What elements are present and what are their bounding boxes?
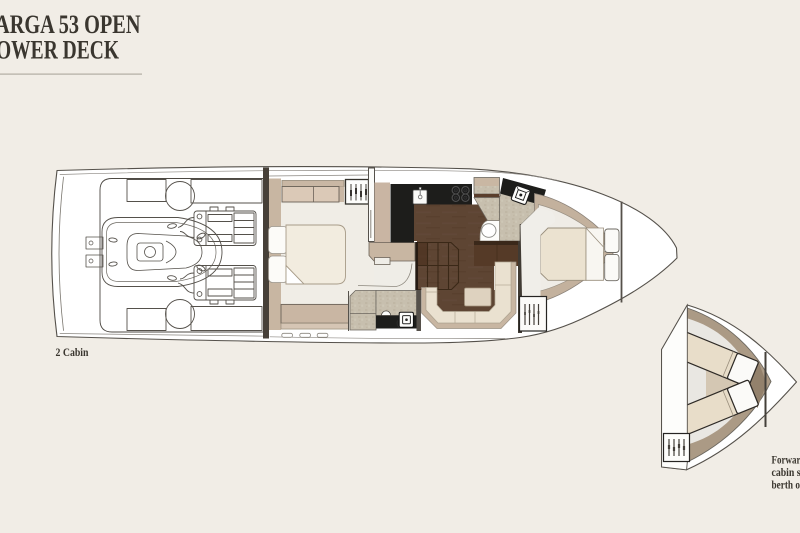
svg-text:2 Cabin: 2 Cabin [56, 347, 90, 359]
svg-text:berth option: berth option [772, 480, 800, 492]
svg-text:cabin scissor: cabin scissor [772, 467, 800, 479]
svg-text:Forward: Forward [772, 455, 800, 467]
svg-text:LOWER DECK: LOWER DECK [0, 35, 119, 65]
